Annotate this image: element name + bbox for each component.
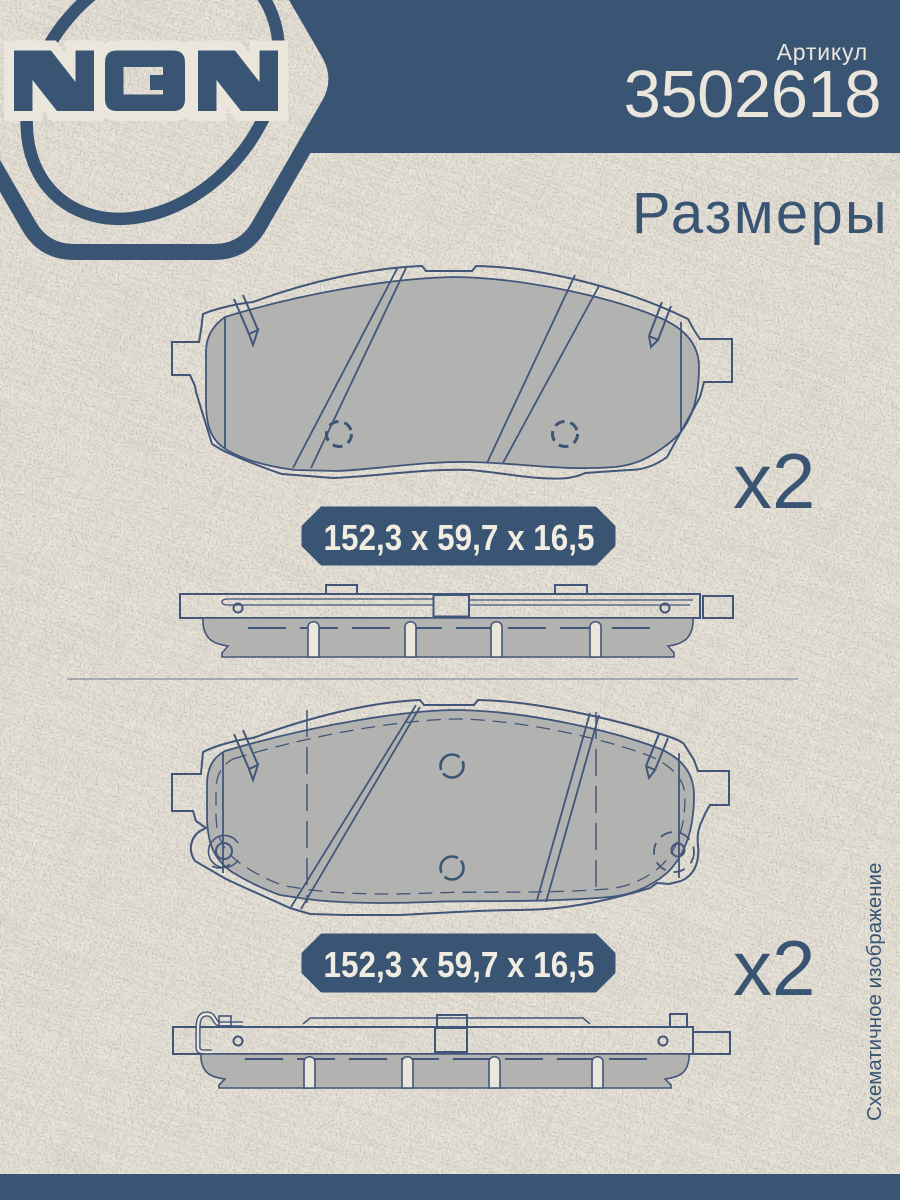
svg-text:152,3 x 59,7 x 16,5: 152,3 x 59,7 x 16,5 — [324, 944, 595, 985]
svg-text:x2: x2 — [733, 437, 815, 525]
svg-text:3502618: 3502618 — [624, 57, 881, 132]
svg-text:Размеры: Размеры — [632, 181, 889, 246]
svg-text:x2: x2 — [733, 924, 815, 1012]
svg-text:Схематичное изображение: Схематичное изображение — [863, 863, 886, 1121]
svg-text:152,3 x 59,7 x 16,5: 152,3 x 59,7 x 16,5 — [324, 517, 595, 558]
